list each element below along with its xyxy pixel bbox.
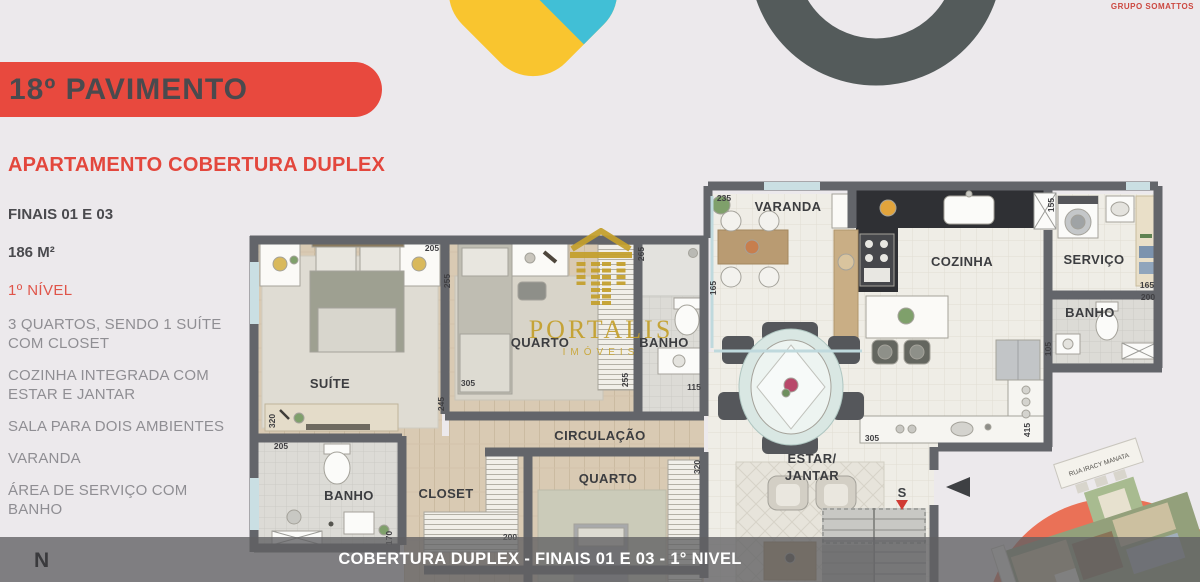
dim-label: 165 <box>708 281 718 295</box>
room-label-circulacao: CIRCULAÇÃO <box>554 428 645 443</box>
dim-label: 200 <box>1141 292 1155 302</box>
info-panel: APARTAMENTO COBERTURA DUPLEX FINAIS 01 E… <box>8 154 236 519</box>
room-label-quarto-2: QUARTO <box>579 471 638 486</box>
dim-label: 320 <box>267 414 277 428</box>
feature-list: 3 QUARTOS, SENDO 1 SUÍTE COM CLOSET COZI… <box>8 315 236 519</box>
level-label: 1º NÍVEL <box>8 282 236 299</box>
room-label-estar-2: JANTAR <box>785 468 839 483</box>
dim-label: 305 <box>865 433 879 443</box>
room-label-servico: SERVIÇO <box>1063 252 1124 267</box>
caption-bar: COBERTURA DUPLEX - FINAIS 01 E 03 - 1° N… <box>0 537 1200 582</box>
room-label-closet: CLOSET <box>418 486 473 501</box>
ring-shape <box>773 0 979 62</box>
feature-item: 3 QUARTOS, SENDO 1 SUÍTE COM CLOSET <box>8 315 236 353</box>
dim-label: 305 <box>461 378 475 388</box>
room-label-banho-servico: BANHO <box>1065 305 1115 320</box>
dim-label: 235 <box>717 193 731 203</box>
floor-banner-label: 18º PAVIMENTO <box>0 73 248 107</box>
caption-text: COBERTURA DUPLEX - FINAIS 01 E 03 - 1° N… <box>0 537 1140 582</box>
pill-shape <box>430 0 636 95</box>
dim-label: 115 <box>687 382 701 392</box>
dim-label: 320 <box>692 460 702 474</box>
dim-label: 155 <box>1046 198 1056 212</box>
dim-label: 245 <box>436 397 446 411</box>
units-label: FINAIS 01 E 03 <box>8 206 236 223</box>
dim-label: 255 <box>620 373 630 387</box>
dim-label: 415 <box>1022 423 1032 437</box>
temple-icon <box>569 228 633 308</box>
dim-label: 105 <box>1043 342 1053 356</box>
feature-item: ÁREA DE SERVIÇO COM BANHO <box>8 481 236 519</box>
compass-south-label: S <box>898 485 907 500</box>
compass-north-label: N <box>34 549 49 573</box>
dim-label: 165 <box>1140 280 1154 290</box>
feature-item: SALA PARA DOIS AMBIENTES <box>8 417 236 436</box>
floor-banner: 18º PAVIMENTO <box>0 62 382 117</box>
entry-arrow-icon <box>946 477 970 497</box>
page-title: APARTAMENTO COBERTURA DUPLEX <box>8 154 408 176</box>
page: RUA IRACY MANATA <box>0 0 1200 582</box>
room-label-cozinha: COZINHA <box>931 254 993 269</box>
feature-item: VARANDA <box>8 449 236 468</box>
room-label-banho-suite: BANHO <box>324 488 374 503</box>
watermark: PORTALIS IMÓVEIS <box>518 228 684 358</box>
watermark-tagline: IMÓVEIS <box>518 347 684 358</box>
room-label-varanda: VARANDA <box>755 199 822 214</box>
brand-label: GRUPO SOMATTOS <box>1111 2 1194 11</box>
dim-label: 205 <box>425 243 439 253</box>
room-label-estar-1: ESTAR/ <box>787 451 836 466</box>
dim-label: 205 <box>274 441 288 451</box>
watermark-name: PORTALIS <box>518 315 684 345</box>
feature-item: COZINHA INTEGRADA COM ESTAR E JANTAR <box>8 366 236 404</box>
room-label-suite: SUÍTE <box>310 376 350 391</box>
area-label: 186 M² <box>8 244 236 261</box>
dim-label: 255 <box>442 274 452 288</box>
